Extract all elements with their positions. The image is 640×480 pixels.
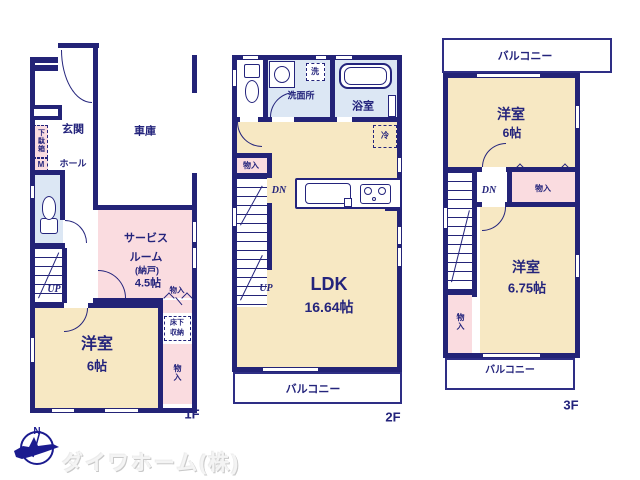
footer: N ダイワホーム(株) — [0, 0, 640, 480]
compass-bird — [14, 437, 59, 459]
company-logo-text: ダイワホーム(株) — [62, 447, 240, 477]
compass-icon: N — [12, 424, 60, 472]
compass-north-letter: N — [33, 426, 40, 437]
floor-plan-sheet: 玄関 車庫 下駄箱 M ホール サービス ルーム (納戸) 4.5帖 UP 物入… — [0, 0, 640, 480]
